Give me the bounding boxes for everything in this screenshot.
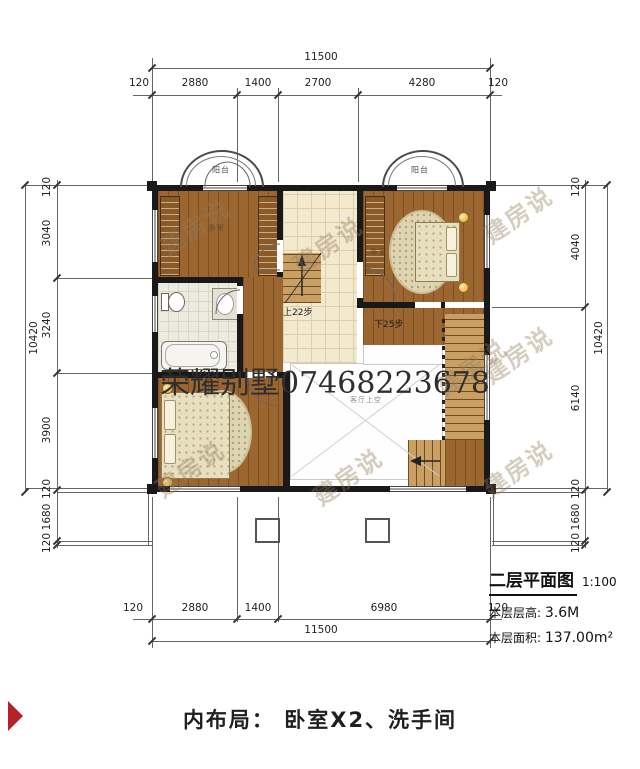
stairs-bottom-flight (408, 440, 445, 486)
window (170, 486, 240, 492)
dim-line-bottom-overall (152, 641, 490, 642)
porch-edge-line (148, 492, 149, 545)
dim-left-overall: 10420 (28, 321, 40, 354)
bedside-lamp (458, 212, 469, 223)
dim-top-seg: 120 (129, 77, 149, 89)
balcony-label: 阳台 (411, 165, 429, 176)
dim-right-seg: 1680 (570, 504, 582, 531)
dim-line-right-segments (585, 180, 586, 548)
window (152, 408, 158, 458)
pillow (446, 227, 457, 251)
extension-line (57, 278, 152, 279)
dim-line-right-overall (607, 185, 608, 492)
dim-bottom-seg: 1400 (245, 602, 272, 614)
dim-line-bottom-segments (133, 619, 502, 620)
dim-right-seg: 4040 (570, 234, 582, 261)
dim-line-left-overall (25, 185, 26, 492)
extension-line (492, 185, 607, 186)
bedside-lamp (458, 282, 469, 293)
wall-interior (152, 277, 243, 283)
phone-watermark: 荣耀别墅07468223678 (160, 358, 490, 402)
floor-area-label: 本层面积: (489, 631, 541, 645)
floor-height-label: 本层层高: (489, 606, 541, 620)
pillow (164, 400, 176, 430)
dim-bottom-seg: 120 (123, 602, 143, 614)
dim-left-seg: 120 (41, 533, 53, 553)
door-opening (277, 240, 283, 272)
corner-post (486, 484, 496, 494)
extension-line (278, 88, 279, 182)
extension-line (152, 497, 153, 648)
window (152, 210, 158, 262)
extension-line (57, 492, 152, 493)
dim-tick (21, 488, 29, 496)
stairs-center-flight (283, 253, 321, 303)
balcony-label: 阳台 (212, 165, 230, 176)
dim-bottom-seg: 2880 (182, 602, 209, 614)
title-block: 二层平面图1:100 本层层高: 3.6M 本层面积: 137.00m² (489, 566, 639, 646)
porch-column (255, 518, 280, 543)
extension-line (152, 58, 153, 185)
caption-text: 内布局： 卧室X2、洗手间 (0, 704, 640, 734)
extension-line (57, 545, 152, 546)
dim-tick (603, 488, 611, 496)
dim-left-seg: 3040 (41, 220, 53, 247)
door-opening (357, 262, 363, 298)
extension-line (358, 88, 359, 182)
dim-right-seg: 120 (570, 479, 582, 499)
sink-basin (216, 293, 234, 315)
bedroom-label: 卧室 (209, 223, 225, 233)
dim-top-seg: 4280 (409, 77, 436, 89)
dim-line-top-overall (152, 68, 490, 69)
pillow (446, 253, 457, 277)
dim-left-seg: 1680 (41, 504, 53, 531)
extension-line (492, 307, 585, 308)
toilet-bowl (168, 292, 185, 312)
stairs-down-label: 下25步 (374, 317, 403, 330)
dim-top-seg: 2700 (305, 77, 332, 89)
dim-top-seg: 120 (488, 77, 508, 89)
extension-line (237, 497, 238, 622)
plan-title: 二层平面图 (489, 566, 577, 596)
extension-line (57, 373, 152, 374)
extension-line (278, 497, 279, 622)
corner-post (147, 181, 157, 191)
wardrobe (160, 196, 180, 276)
dim-bottom-seg: 6980 (371, 602, 398, 614)
wardrobe (365, 196, 385, 276)
extension-line (57, 541, 152, 542)
stair-corner-landing (445, 440, 484, 486)
extension-line (492, 488, 607, 489)
dim-right-overall: 10420 (593, 321, 605, 354)
window (152, 296, 158, 332)
window (390, 486, 466, 492)
floor-area-value: 137.00m² (545, 630, 613, 646)
dim-left-seg: 120 (41, 177, 53, 197)
corner-post (486, 181, 496, 191)
dim-top-overall: 11500 (304, 51, 337, 63)
porch-edge-line (493, 492, 494, 545)
stairs-up-label: 上22步 (283, 305, 312, 318)
plan-scale: 1:100 (582, 575, 617, 589)
dim-left-seg: 120 (41, 479, 53, 499)
porch-column (365, 518, 390, 543)
floorplan-page: 11500 120 2880 1400 2700 4280 120 120 28… (0, 0, 640, 769)
dim-bottom-overall: 11500 (304, 624, 337, 636)
dim-right-seg: 6140 (570, 385, 582, 412)
dim-top-seg: 2880 (182, 77, 209, 89)
dim-left-seg: 3900 (41, 417, 53, 444)
bedroom-label: 卧室 (371, 247, 387, 257)
dim-top-seg: 1400 (245, 77, 272, 89)
floor-height-value: 3.6M (545, 605, 579, 621)
window (484, 215, 490, 268)
pillow (164, 434, 176, 464)
dim-left-seg: 3240 (41, 312, 53, 339)
door-opening (237, 286, 243, 314)
dim-line-top-segments (133, 95, 502, 96)
door-opening (415, 302, 441, 308)
corner-post (147, 484, 157, 494)
